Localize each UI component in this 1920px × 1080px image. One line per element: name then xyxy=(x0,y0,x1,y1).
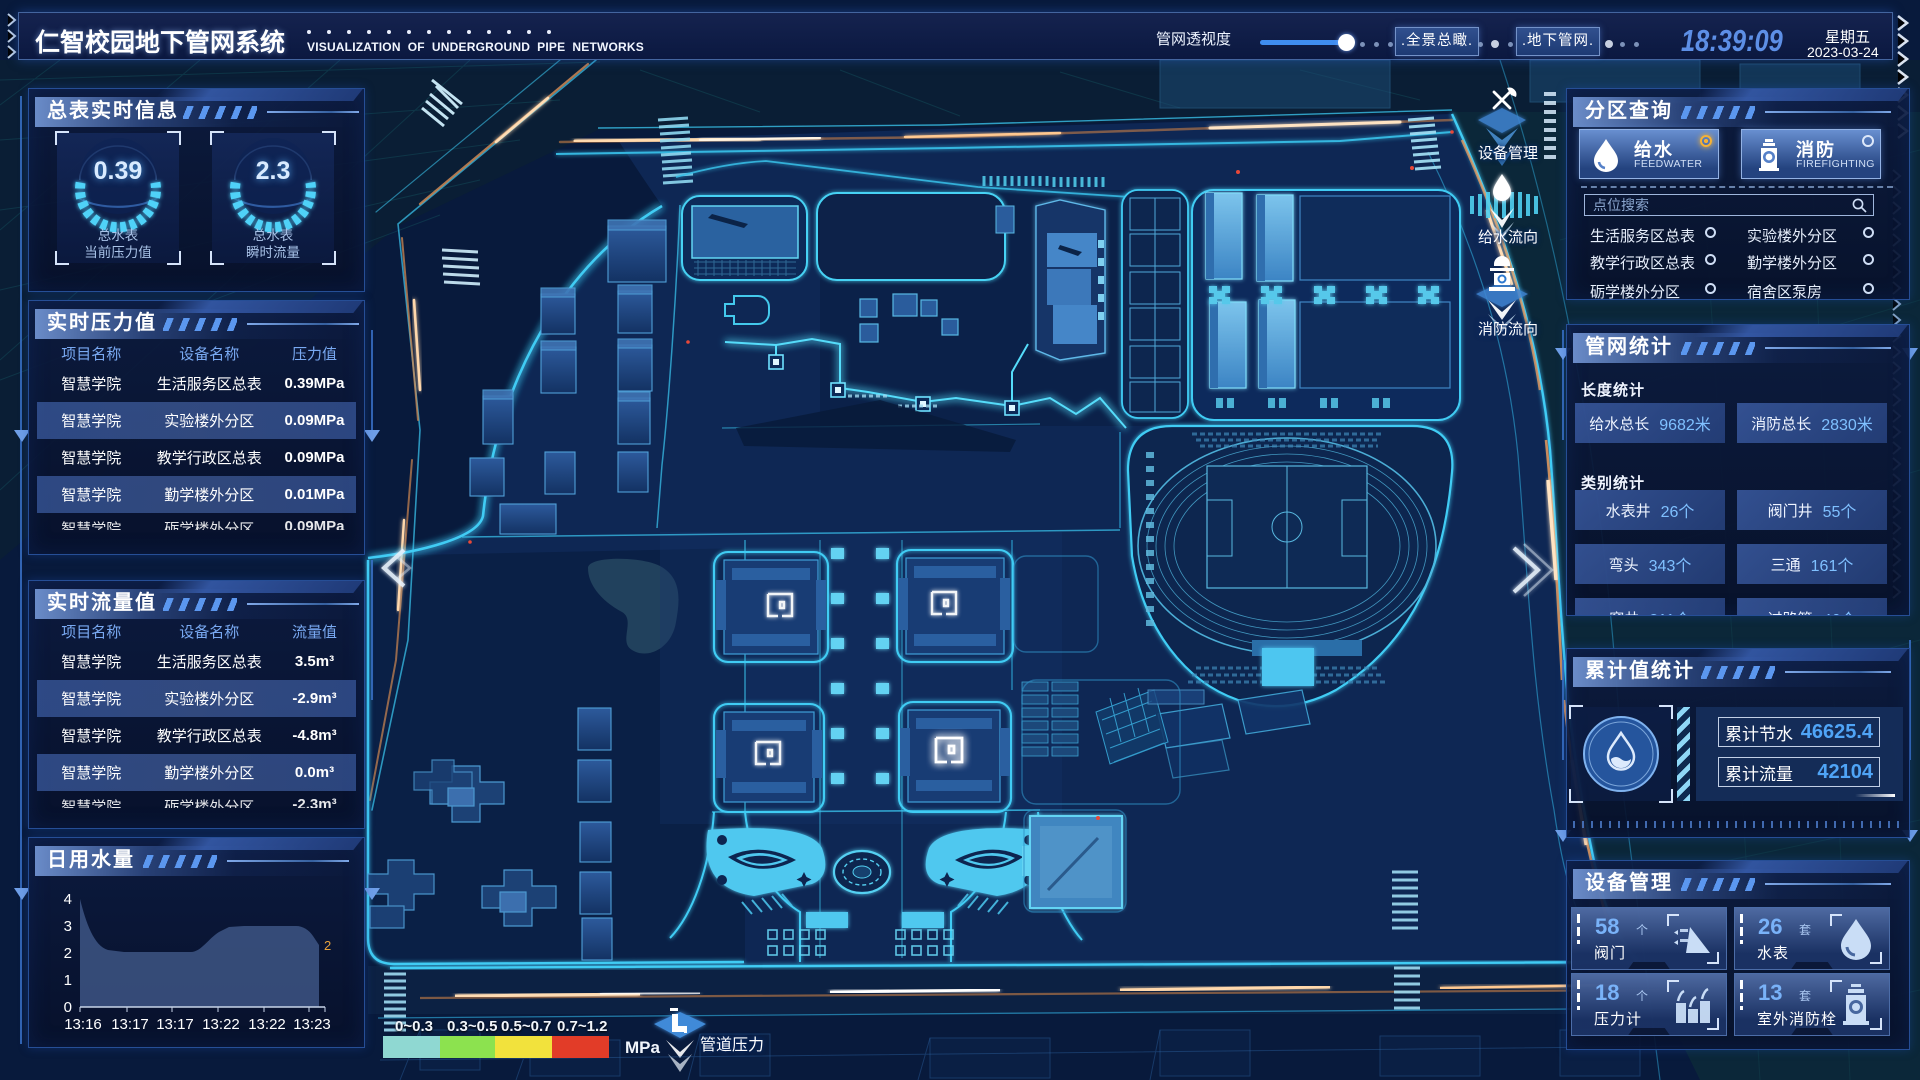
svg-text:3: 3 xyxy=(64,918,72,935)
svg-text:2: 2 xyxy=(324,938,331,953)
svg-text:13:23: 13:23 xyxy=(293,1016,331,1033)
svg-text:2: 2 xyxy=(64,945,72,962)
svg-text:0: 0 xyxy=(64,999,72,1016)
svg-text:13:22: 13:22 xyxy=(202,1016,240,1033)
svg-text:13:22: 13:22 xyxy=(248,1016,286,1033)
svg-text:13:17: 13:17 xyxy=(156,1016,194,1033)
svg-text:13:17: 13:17 xyxy=(111,1016,149,1033)
svg-text:1: 1 xyxy=(64,972,72,989)
svg-text:4: 4 xyxy=(64,891,72,908)
svg-text:13:16: 13:16 xyxy=(64,1016,102,1033)
